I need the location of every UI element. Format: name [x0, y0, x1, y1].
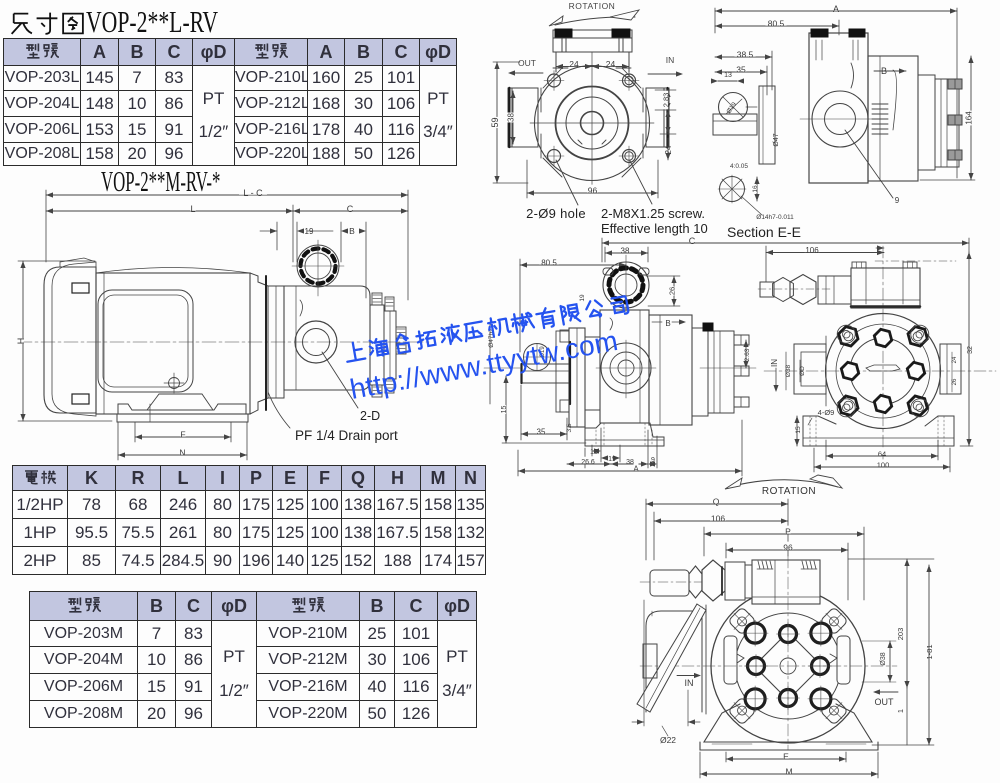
- svg-text:ROTATION: ROTATION: [569, 1, 616, 11]
- svg-text:80.5: 80.5: [541, 259, 557, 268]
- svg-text:80.5: 80.5: [768, 19, 785, 29]
- svg-text:L: L: [190, 204, 195, 214]
- svg-text:19: 19: [579, 294, 586, 302]
- svg-text:IN: IN: [666, 55, 675, 65]
- svg-text:Ø38: Ø38: [785, 364, 792, 377]
- svg-text:164: 164: [965, 111, 974, 125]
- svg-text:A: A: [833, 4, 839, 14]
- svg-text:4:0.05: 4:0.05: [730, 163, 748, 170]
- svg-text:16: 16: [752, 185, 759, 193]
- svg-text:F: F: [180, 430, 185, 440]
- svg-text:B: B: [349, 226, 355, 236]
- svg-text:15: 15: [501, 406, 508, 414]
- svg-text:Effective length 10: Effective length 10: [601, 221, 708, 236]
- svg-text:2-M8X1.25 screw.: 2-M8X1.25 screw.: [601, 206, 705, 221]
- svg-text:64: 64: [878, 449, 886, 458]
- svg-text:24: 24: [952, 356, 958, 363]
- svg-text:N: N: [179, 448, 185, 458]
- svg-text:1: 1: [896, 709, 905, 713]
- svg-text:38: 38: [621, 247, 630, 256]
- svg-text:24: 24: [569, 59, 579, 69]
- svg-text:26: 26: [952, 378, 958, 385]
- svg-text:9: 9: [895, 196, 900, 205]
- svg-text:24: 24: [606, 59, 616, 69]
- svg-text:203: 203: [896, 628, 905, 641]
- svg-text:P: P: [785, 527, 791, 537]
- svg-text:26.6: 26.6: [581, 459, 595, 466]
- svg-text:C: C: [689, 236, 696, 246]
- svg-text:2-Ø9 hole: 2-Ø9 hole: [526, 206, 586, 221]
- svg-text:100: 100: [877, 460, 890, 469]
- svg-text:ØD: ØD: [799, 366, 806, 376]
- svg-text:35: 35: [537, 428, 546, 437]
- svg-text:B: B: [665, 319, 670, 328]
- svg-text:Ø19: Ø19: [725, 101, 738, 115]
- svg-text:19: 19: [305, 227, 314, 236]
- svg-text:M: M: [785, 767, 792, 777]
- svg-text:OUT: OUT: [518, 58, 536, 68]
- svg-text:IN: IN: [685, 678, 694, 688]
- svg-text:IN: IN: [770, 359, 779, 367]
- svg-text:38.5: 38.5: [737, 50, 754, 60]
- svg-text:C: C: [347, 204, 354, 214]
- svg-text:15: 15: [795, 426, 802, 434]
- svg-text:Q: Q: [713, 497, 720, 507]
- svg-text:13: 13: [590, 449, 598, 456]
- svg-text:Section E-E: Section E-E: [727, 224, 801, 240]
- svg-text:96: 96: [588, 186, 598, 196]
- svg-text:35: 35: [736, 65, 746, 75]
- svg-text:Ø38: Ø38: [880, 652, 887, 665]
- svg-text:106: 106: [711, 514, 725, 524]
- svg-text:32: 32: [967, 346, 974, 354]
- svg-text:96: 96: [783, 543, 793, 553]
- svg-text:http://www.ttyytw.com: http://www.ttyytw.com: [347, 325, 620, 405]
- svg-text:9: 9: [651, 457, 655, 464]
- svg-text:E: E: [783, 752, 789, 762]
- svg-text:106: 106: [805, 246, 819, 255]
- svg-text:ROTATION: ROTATION: [762, 486, 816, 497]
- svg-text:H: H: [16, 338, 26, 345]
- svg-text:3.5: 3.5: [566, 423, 573, 432]
- svg-text:13: 13: [724, 72, 732, 79]
- svg-text:2.83: 2.83: [661, 93, 670, 108]
- svg-text:1-81: 1-81: [925, 644, 934, 659]
- svg-text:L - C: L - C: [243, 188, 263, 198]
- svg-text:PF 1/4 Drain port: PF 1/4 Drain port: [295, 428, 398, 443]
- svg-text:4-Ø9: 4-Ø9: [818, 408, 835, 417]
- svg-text:2.63: 2.63: [744, 348, 751, 361]
- svg-text:Ø22: Ø22: [660, 735, 676, 745]
- svg-text:Ø47: Ø47: [773, 133, 780, 146]
- svg-text:38: 38: [507, 113, 516, 122]
- svg-text:OUT: OUT: [875, 697, 895, 707]
- svg-text:Ø14h7-0.011: Ø14h7-0.011: [756, 214, 794, 221]
- svg-text:B: B: [881, 66, 887, 76]
- svg-text:59: 59: [490, 117, 500, 127]
- svg-text:2-D: 2-D: [360, 409, 380, 423]
- svg-text:26: 26: [667, 287, 676, 295]
- svg-text:19: 19: [608, 456, 616, 463]
- svg-text:A: A: [633, 465, 639, 474]
